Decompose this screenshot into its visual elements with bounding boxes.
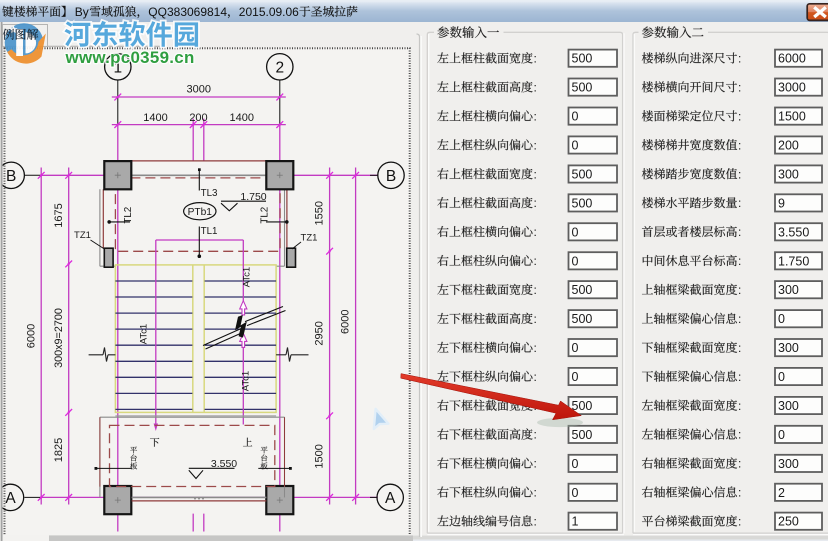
svg-text::: : (534, 283, 537, 297)
svg-text:0: 0 (572, 225, 579, 239)
svg-text::: : (738, 196, 741, 210)
svg-text:300: 300 (778, 399, 799, 413)
svg-text:300: 300 (778, 283, 799, 297)
svg-text:TL3: TL3 (201, 188, 218, 199)
svg-text:ATc1: ATc1 (241, 371, 252, 391)
svg-text:1: 1 (572, 515, 579, 529)
svg-text::: : (534, 428, 537, 442)
svg-text::: : (738, 370, 741, 384)
svg-text:TL2: TL2 (260, 207, 271, 224)
svg-text::: : (534, 52, 537, 66)
svg-text:PTb1: PTb1 (188, 207, 213, 218)
svg-text::: : (738, 457, 741, 471)
svg-text:300: 300 (778, 457, 799, 471)
svg-text::: : (534, 457, 537, 471)
svg-text::: : (738, 254, 741, 268)
svg-text:500: 500 (572, 52, 593, 66)
svg-text:500: 500 (572, 428, 593, 442)
svg-text:TL2: TL2 (123, 207, 134, 224)
svg-text::: : (738, 80, 741, 94)
svg-text::: : (534, 167, 537, 181)
svg-text:ATc1: ATc1 (139, 324, 150, 344)
svg-text:0: 0 (572, 139, 579, 153)
svg-text::: : (738, 515, 741, 529)
svg-text::: : (738, 138, 741, 152)
svg-text:2: 2 (275, 59, 284, 76)
svg-text:0: 0 (778, 370, 785, 384)
svg-text:0: 0 (572, 486, 579, 500)
svg-text:0: 0 (572, 254, 579, 268)
svg-text:500: 500 (572, 81, 593, 95)
svg-text:6000: 6000 (778, 52, 806, 66)
svg-text:3000: 3000 (778, 81, 806, 95)
svg-text:0: 0 (572, 341, 579, 355)
svg-text:www.pc0359.cn: www.pc0359.cn (65, 48, 195, 67)
svg-text:TL1: TL1 (201, 226, 218, 237)
svg-text:1.750: 1.750 (778, 254, 809, 268)
svg-text:2: 2 (778, 486, 785, 500)
svg-text:0: 0 (778, 312, 785, 326)
svg-text:500: 500 (572, 168, 593, 182)
svg-text:B: B (386, 168, 396, 185)
svg-text::: : (534, 254, 537, 268)
svg-text:QQ383069814: QQ383069814 (148, 5, 227, 19)
svg-text:0: 0 (572, 457, 579, 471)
svg-text::: : (534, 486, 537, 500)
svg-text:1500: 1500 (314, 444, 326, 468)
svg-text::: : (534, 138, 537, 152)
svg-text:2015.09.06: 2015.09.06 (239, 5, 299, 19)
svg-text:1400: 1400 (230, 112, 254, 124)
svg-text:300: 300 (778, 341, 799, 355)
svg-text:TZ1: TZ1 (74, 230, 91, 241)
svg-text::: : (738, 109, 741, 123)
svg-text:1675: 1675 (53, 203, 65, 227)
svg-text::: : (738, 283, 741, 297)
svg-text:TZ1: TZ1 (301, 233, 318, 244)
svg-text::: : (738, 225, 741, 239)
svg-text::: : (534, 370, 537, 384)
svg-text:3.550: 3.550 (778, 225, 809, 239)
svg-text::: : (738, 486, 741, 500)
svg-text::: : (738, 167, 741, 181)
svg-text::: : (534, 109, 537, 123)
svg-text:300: 300 (778, 168, 799, 182)
svg-text::: : (738, 428, 741, 442)
svg-text:0: 0 (572, 370, 579, 384)
svg-text:200: 200 (778, 139, 799, 153)
svg-text::: : (738, 341, 741, 355)
svg-text:3000: 3000 (187, 84, 211, 96)
svg-text:2950: 2950 (314, 321, 326, 345)
svg-text:B: B (6, 168, 16, 185)
svg-text::: : (534, 312, 537, 326)
svg-text::: : (534, 341, 537, 355)
svg-text:300x9=2700: 300x9=2700 (53, 308, 65, 368)
svg-text:200: 200 (189, 112, 207, 124)
svg-text:A: A (385, 490, 396, 507)
svg-text:500: 500 (572, 196, 593, 210)
svg-text:1825: 1825 (53, 438, 65, 462)
svg-text:6000: 6000 (340, 309, 352, 333)
svg-text:500: 500 (572, 312, 593, 326)
svg-text:500: 500 (572, 283, 593, 297)
svg-text:1400: 1400 (143, 112, 167, 124)
svg-text:0: 0 (778, 428, 785, 442)
svg-text::: : (738, 399, 741, 413)
svg-text::: : (534, 225, 537, 239)
svg-text:ATc1: ATc1 (241, 267, 252, 287)
svg-text::: : (534, 196, 537, 210)
svg-text::: : (738, 52, 741, 66)
svg-text:0: 0 (572, 110, 579, 124)
svg-text::: : (738, 312, 741, 326)
svg-text:6000: 6000 (26, 324, 38, 348)
svg-text:250: 250 (778, 515, 799, 529)
svg-text:A: A (5, 490, 16, 507)
svg-text:By: By (75, 5, 89, 19)
svg-text::: : (534, 515, 537, 529)
svg-text::: : (534, 80, 537, 94)
svg-text:1550: 1550 (314, 201, 326, 225)
svg-text:9: 9 (778, 196, 785, 210)
svg-text:1500: 1500 (778, 110, 806, 124)
